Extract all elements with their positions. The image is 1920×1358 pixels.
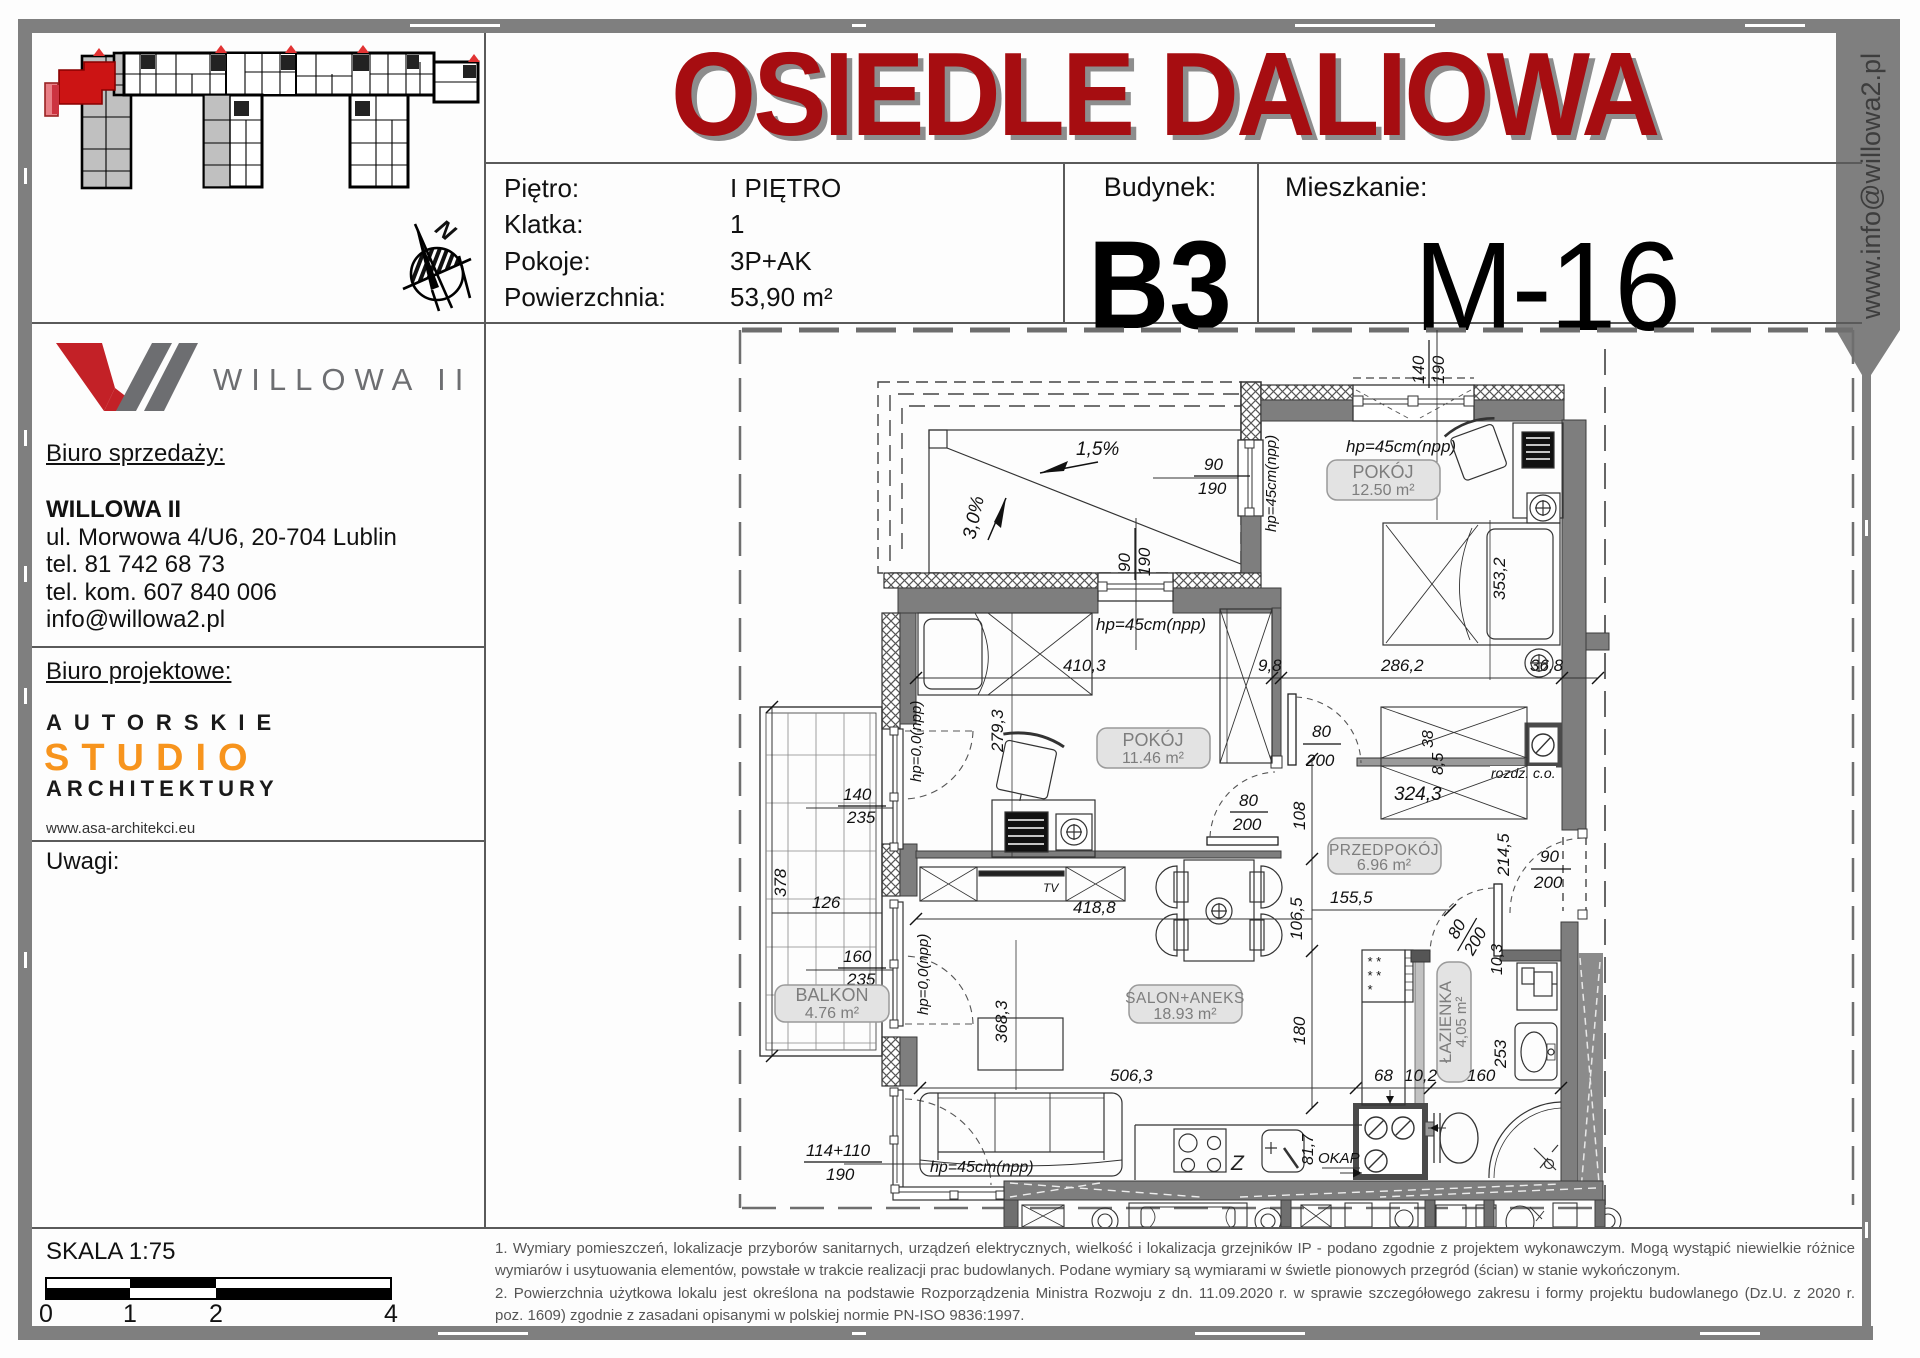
- svg-text:160: 160: [1467, 1066, 1496, 1085]
- svg-text:N: N: [430, 214, 461, 246]
- svg-text:3,0%: 3,0%: [959, 494, 989, 541]
- svg-text:368,3: 368,3: [992, 1000, 1011, 1043]
- svg-text:POKÓJ: POKÓJ: [1122, 729, 1183, 750]
- svg-text:18.93 m²: 18.93 m²: [1153, 1006, 1217, 1023]
- svg-text:OKAP: OKAP: [1318, 1150, 1360, 1167]
- svg-text:8,5: 8,5: [1430, 753, 1447, 775]
- svg-text:506,3: 506,3: [1110, 1066, 1153, 1085]
- svg-text:235: 235: [846, 808, 876, 827]
- svg-text:200: 200: [1533, 873, 1563, 892]
- svg-text:hp=45cm(npp): hp=45cm(npp): [1263, 435, 1280, 532]
- svg-text:4: 4: [384, 1300, 398, 1327]
- svg-text:10,2: 10,2: [1404, 1066, 1438, 1085]
- svg-text:114+110: 114+110: [806, 1141, 871, 1160]
- svg-text:Z: Z: [1230, 1152, 1245, 1175]
- svg-text:126: 126: [812, 893, 841, 912]
- svg-text:hp=45cm(npp): hp=45cm(npp): [1346, 437, 1456, 456]
- svg-text:140: 140: [843, 785, 872, 804]
- svg-text:68: 68: [1374, 1066, 1393, 1085]
- svg-text:2: 2: [209, 1300, 223, 1327]
- svg-text:190: 190: [1429, 355, 1448, 384]
- svg-text:11.46 m²: 11.46 m²: [1122, 750, 1185, 767]
- svg-text:410,3: 410,3: [1063, 656, 1106, 675]
- svg-text:10,3: 10,3: [1489, 944, 1506, 975]
- svg-text:* *: * *: [1367, 954, 1382, 969]
- svg-text:38: 38: [1420, 730, 1437, 748]
- svg-text:0: 0: [39, 1300, 53, 1327]
- svg-text:www.info@willowa2.pl: www.info@willowa2.pl: [1856, 53, 1886, 320]
- svg-text:190: 190: [826, 1165, 855, 1184]
- svg-text:90: 90: [1540, 847, 1559, 866]
- svg-text:*: *: [1367, 982, 1373, 997]
- svg-text:TV: TV: [1043, 881, 1059, 895]
- svg-text:4,05 m²: 4,05 m²: [1453, 997, 1470, 1048]
- svg-text:378: 378: [771, 868, 790, 897]
- svg-text:80: 80: [1239, 791, 1258, 810]
- svg-text:SALON+ANEKS: SALON+ANEKS: [1125, 990, 1245, 1007]
- svg-text:108: 108: [1290, 801, 1309, 830]
- svg-text:* *: * *: [1367, 968, 1382, 983]
- svg-text:hp=45cm(npp): hp=45cm(npp): [930, 1159, 1034, 1176]
- svg-text:4.76 m²: 4.76 m²: [805, 1005, 860, 1022]
- svg-text:81,7: 81,7: [1300, 1133, 1317, 1165]
- svg-text:1,5%: 1,5%: [1076, 439, 1119, 460]
- svg-text:12.50 m²: 12.50 m²: [1351, 482, 1415, 499]
- svg-text:BALKON: BALKON: [795, 985, 868, 1005]
- svg-text:190: 190: [1198, 479, 1227, 498]
- svg-text:160: 160: [843, 947, 872, 966]
- svg-text:140: 140: [1409, 355, 1428, 384]
- svg-text:180: 180: [1290, 1016, 1309, 1045]
- svg-text:90: 90: [1115, 553, 1134, 572]
- svg-text:1: 1: [123, 1300, 137, 1327]
- svg-text:279,3: 279,3: [988, 709, 1007, 753]
- svg-text:214,5: 214,5: [1494, 833, 1513, 877]
- svg-text:POKÓJ: POKÓJ: [1352, 461, 1413, 482]
- svg-text:200: 200: [1232, 815, 1262, 834]
- svg-text:253: 253: [1491, 1039, 1510, 1069]
- svg-text:90: 90: [1204, 455, 1223, 474]
- svg-text:80: 80: [1312, 722, 1331, 741]
- svg-text:190: 190: [1135, 547, 1154, 576]
- svg-text:hp=45cm(npp): hp=45cm(npp): [1096, 615, 1206, 634]
- svg-text:9,8: 9,8: [1258, 656, 1282, 675]
- svg-text:353,2: 353,2: [1490, 557, 1509, 600]
- svg-text:106,5: 106,5: [1287, 897, 1306, 940]
- svg-text:200: 200: [1305, 751, 1335, 770]
- svg-text:286,2: 286,2: [1380, 656, 1424, 675]
- svg-text:324,3: 324,3: [1394, 784, 1442, 805]
- svg-text:155,5: 155,5: [1330, 888, 1373, 907]
- svg-text:hp=0,0(npp): hp=0,0(npp): [915, 934, 932, 1015]
- svg-text:hp=0,0(npp): hp=0,0(npp): [908, 701, 925, 782]
- svg-text:6.96 m²: 6.96 m²: [1357, 857, 1412, 874]
